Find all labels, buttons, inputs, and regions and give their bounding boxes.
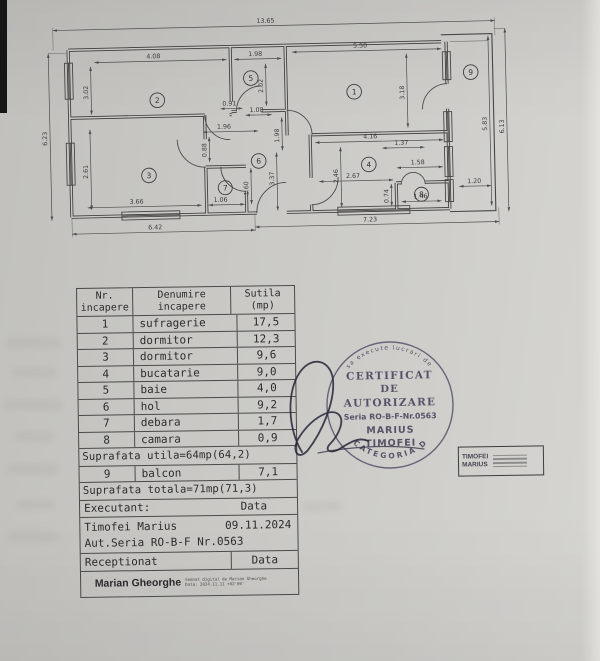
dim-label: 3.66: [130, 199, 144, 206]
dim-label: 13.65: [256, 18, 274, 25]
round-stamp: sa execute lucrari de CATEGORIA D CERTIF…: [326, 341, 454, 469]
dim-label: 2.61: [83, 165, 90, 179]
door-arcs: [176, 82, 450, 215]
svg-text:2: 2: [155, 96, 160, 105]
stamp-name1: MARIUS: [366, 425, 414, 437]
svg-text:CATEGORIA D: CATEGORIA D: [352, 437, 430, 461]
handwritten-signature: [290, 362, 424, 455]
dim-label: 3.18: [399, 86, 406, 100]
dim-label: 6.13: [499, 119, 506, 133]
bleed-through-mark: [302, 502, 342, 511]
dim-label: 3.02: [83, 86, 90, 100]
dim-label: 7.23: [363, 216, 377, 223]
dim-label: 2.46: [333, 169, 340, 183]
dimension-lines: [48, 20, 510, 234]
svg-text:4: 4: [366, 160, 371, 169]
executant-name: Timofei Marius: [84, 520, 177, 534]
executant-authorization: Aut.Seria RO-B-F Nr.0563: [84, 534, 293, 550]
receptionat-data-label: Data: [232, 553, 298, 567]
svg-text:sa execute lucrari de: sa execute lucrari de: [344, 344, 433, 371]
dim-label: 0.91: [222, 100, 236, 107]
room-number: 9: [463, 65, 478, 80]
executant-details: Timofei Marius09.11.2024 Aut.Seria RO-B-…: [80, 514, 297, 553]
room-number: 2: [150, 93, 165, 108]
stamp-line1: CERTIFICAT: [346, 369, 433, 383]
svg-text:9: 9: [468, 68, 473, 77]
bleed-through-mark: [8, 532, 58, 542]
dim-label: 0.74: [383, 189, 390, 203]
stamp-seria: Seria RO-B-F-Nr.0563: [344, 411, 437, 422]
bleed-through-mark: [4, 400, 62, 410]
dim-label: 1.58: [411, 159, 425, 166]
room-number: 7: [218, 181, 232, 195]
svg-text:6: 6: [256, 157, 261, 166]
dim-label: 0.88: [201, 143, 208, 157]
scanned-cadastral-document: { "plan": { "labels": { "t1365":"13.65",…: [0, 0, 600, 661]
stamp-name2: TIMOFEI: [365, 438, 416, 450]
area-table: Nr.incapere Denumireincapere Sutila(mp) …: [76, 285, 299, 598]
svg-text:8: 8: [419, 190, 424, 199]
executant-date: 09.11.2024: [225, 518, 291, 532]
dim-label: 3.37: [269, 172, 276, 186]
svg-text:7: 7: [223, 183, 228, 192]
table-header-row: Nr.incapere Denumireincapere Sutila(mp): [77, 286, 294, 316]
digital-signature-box: TIMOFEI MARIUS: [458, 445, 544, 476]
bleed-through-mark: [12, 368, 56, 377]
bleed-through-mark: [6, 338, 60, 348]
room-number: 4: [361, 157, 376, 172]
header-suprafata: Sutila(mp): [231, 287, 294, 312]
executant-label: Executant:: [84, 501, 150, 515]
dim-label: 4.08: [146, 53, 160, 60]
svg-text:5: 5: [248, 74, 253, 83]
room-number: 3: [142, 168, 157, 183]
dim-label: 2.02: [258, 79, 265, 93]
dim-label: 1.06: [213, 197, 227, 204]
dim-label: 6.42: [148, 224, 162, 231]
dim-label: 5.83: [482, 117, 489, 131]
signature-row: Marian Gheorghe Semnat digital de Marian…: [81, 567, 298, 596]
stamp-line2: DE: [380, 384, 399, 395]
room-number: 5: [243, 71, 258, 86]
dim-label: 1.98: [248, 51, 262, 58]
dim-label: 1.60: [243, 181, 250, 195]
stamp-ring-bottom-text: CATEGORIA D: [352, 437, 430, 461]
dim-label: 4.16: [363, 133, 377, 140]
receptionat-label: Receptionat: [81, 552, 232, 571]
room-number: 1: [347, 84, 362, 99]
dim-label: 2.67: [346, 173, 360, 180]
digital-signature-note: Semnat digital de Marian GheorgheData: 2…: [185, 576, 267, 587]
signature-name: Marian Gheorghe: [95, 577, 182, 590]
bleed-through-mark: [6, 464, 58, 474]
dim-label: 1.98: [274, 128, 281, 142]
stamp-ring-top-text: sa execute lucrari de: [344, 344, 433, 371]
dim-label: 1.37: [394, 140, 408, 147]
room-number: 6: [251, 153, 266, 168]
header-nr: Nr.incapere: [77, 288, 133, 316]
svg-text:1: 1: [352, 87, 357, 96]
dim-label: 1.20: [467, 178, 481, 185]
dim-label: 6.23: [42, 132, 49, 146]
dim-label: 1.08: [249, 107, 263, 114]
svg-text:3: 3: [147, 171, 152, 180]
bleed-through-mark: [16, 500, 54, 509]
dim-label: 5.50: [353, 42, 367, 49]
signature-box-name: TIMOFEI MARIUS: [462, 453, 489, 470]
floor-plan: 13.65 6.23 5.83 6.13 6.42 7.23 4.08 3.02…: [0, 0, 600, 277]
signature-box-fine-print: [493, 454, 527, 467]
header-denumire: Denumireincapere: [133, 287, 231, 315]
dim-label: 1.96: [217, 124, 231, 131]
stamp-line3: AUTORIZARE: [343, 396, 437, 410]
bleed-through-mark: [14, 432, 54, 441]
data-label: Data: [240, 500, 267, 513]
